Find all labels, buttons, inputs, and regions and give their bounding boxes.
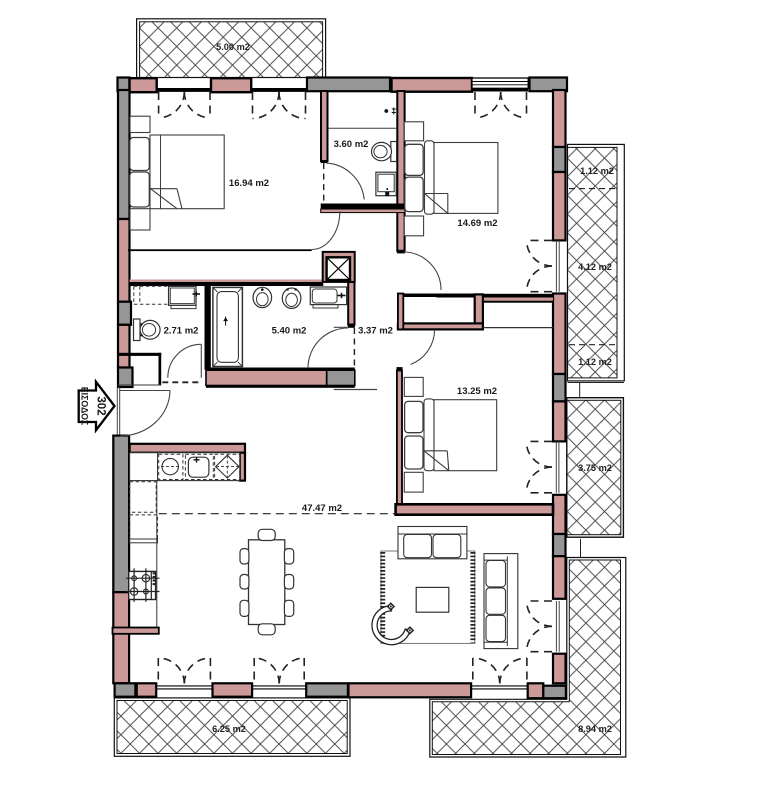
svg-text:5.00 m2: 5.00 m2	[216, 42, 250, 52]
svg-text:6.25 m2: 6.25 m2	[212, 724, 246, 734]
svg-text:2.71 m2: 2.71 m2	[164, 326, 199, 337]
svg-text:3.37 m2: 3.37 m2	[358, 326, 393, 337]
svg-text:302: 302	[94, 396, 106, 415]
svg-text:14.69 m2: 14.69 m2	[457, 218, 497, 229]
svg-text:1.12 m2: 1.12 m2	[580, 166, 614, 176]
svg-text:16.94 m2: 16.94 m2	[229, 178, 269, 189]
svg-text:13.25 m2: 13.25 m2	[457, 386, 497, 397]
svg-text:ΕΙΣΟΔΟΣ: ΕΙΣΟΔΟΣ	[80, 387, 90, 426]
svg-text:3.75 m2: 3.75 m2	[578, 463, 612, 473]
svg-text:1.12 m2: 1.12 m2	[578, 357, 612, 367]
svg-text:4.12 m2: 4.12 m2	[578, 262, 612, 272]
svg-text:5.40 m2: 5.40 m2	[272, 326, 307, 337]
svg-text:47.47 m2: 47.47 m2	[302, 503, 342, 514]
svg-text:3.60 m2: 3.60 m2	[334, 139, 369, 150]
svg-text:8.94 m2: 8.94 m2	[578, 724, 612, 734]
